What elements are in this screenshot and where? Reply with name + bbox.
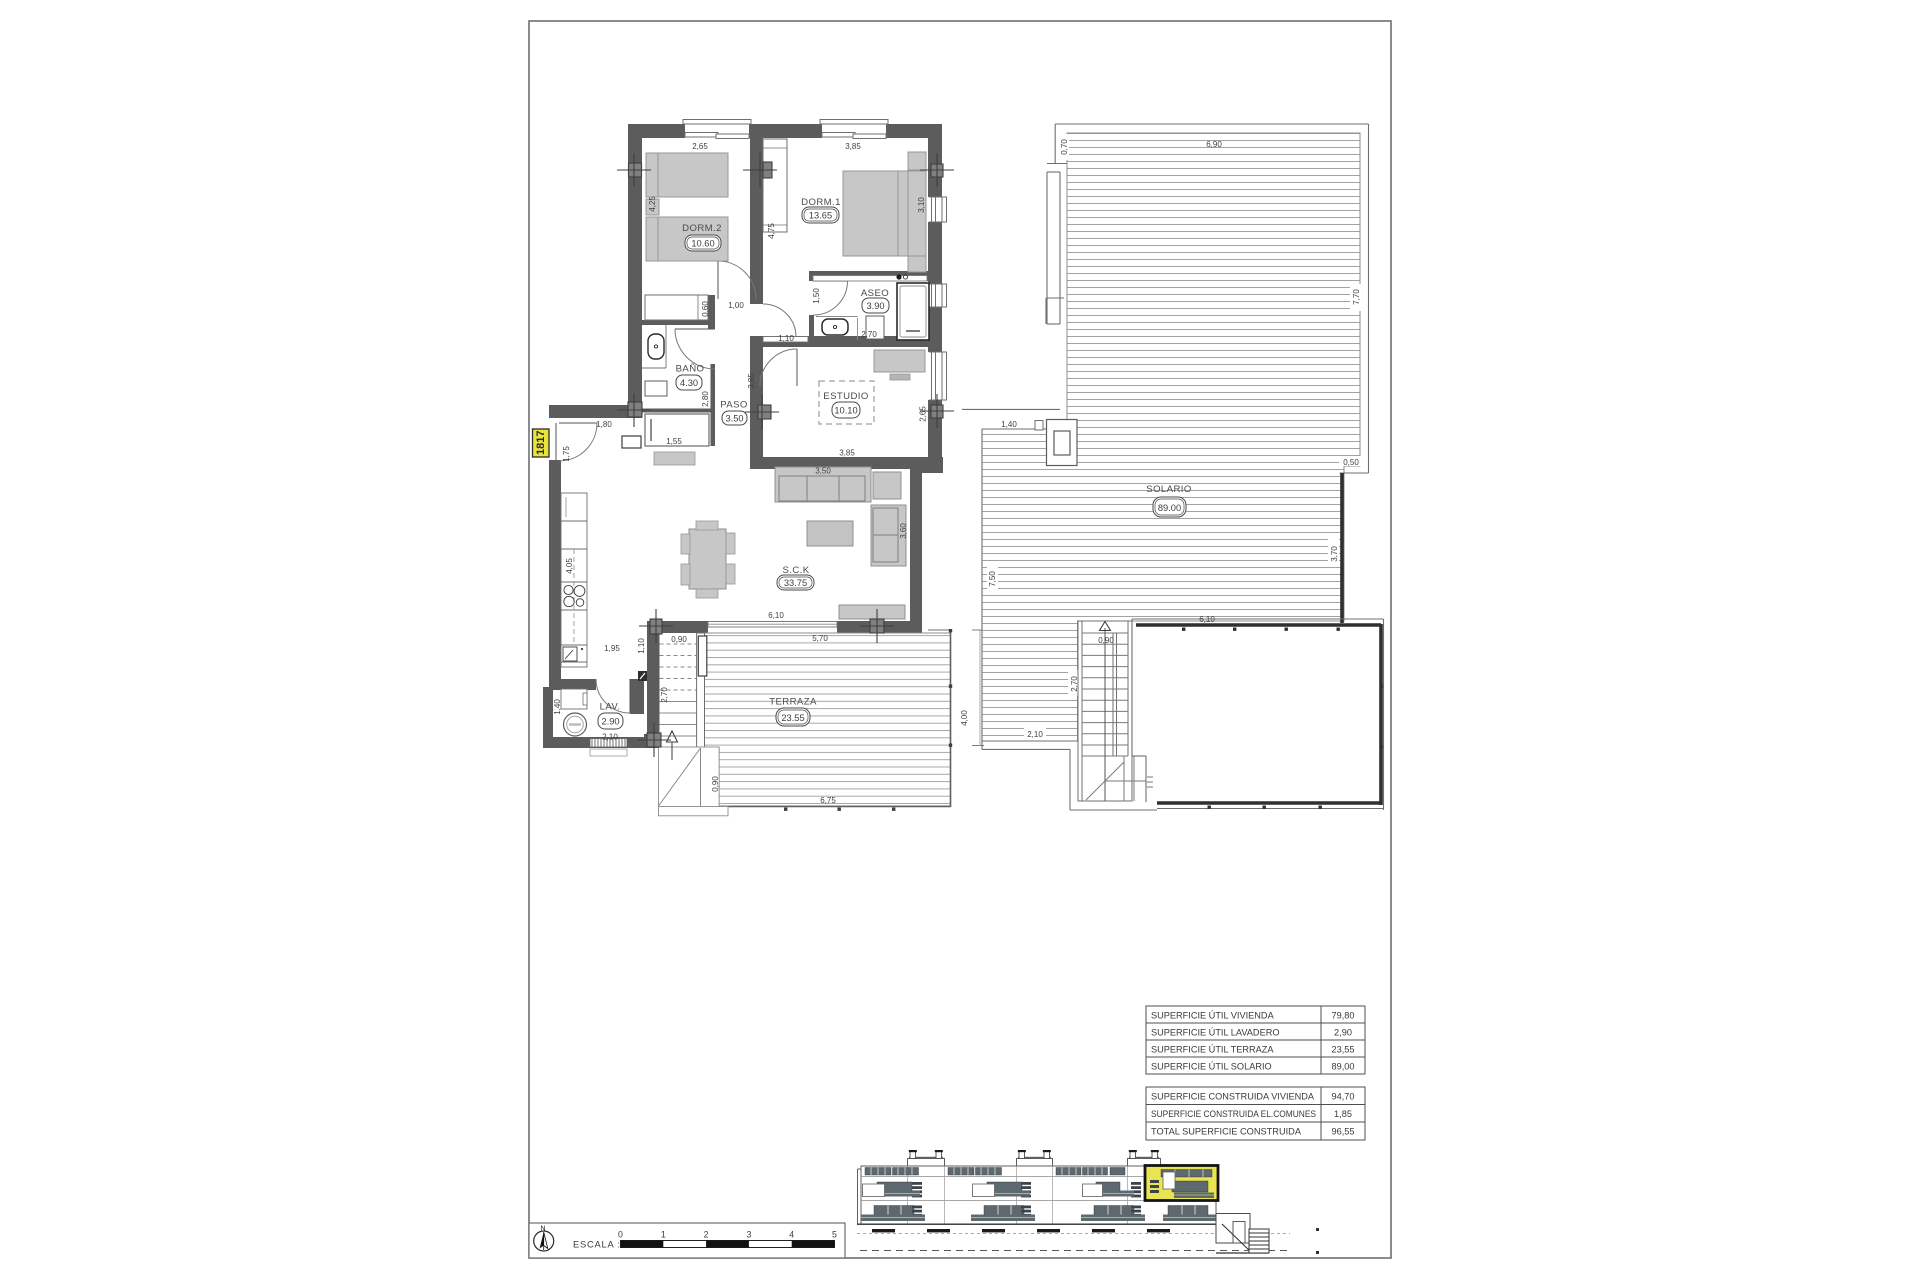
svg-text:PASO: PASO <box>720 400 748 411</box>
svg-text:2,70: 2,70 <box>861 330 877 339</box>
svg-text:1,85: 1,85 <box>1334 1109 1352 1119</box>
svg-text:4,05: 4,05 <box>565 558 574 574</box>
svg-text:7,50: 7,50 <box>988 571 997 587</box>
svg-text:0,50: 0,50 <box>1343 458 1359 467</box>
svg-text:2,90: 2,90 <box>1334 1028 1352 1038</box>
svg-text:5,70: 5,70 <box>812 634 828 643</box>
svg-text:SUPERFICIE ÚTIL VIVIENDA: SUPERFICIE ÚTIL VIVIENDA <box>1151 1011 1275 1021</box>
svg-text:DORM.1: DORM.1 <box>801 197 841 208</box>
svg-text:4.30: 4.30 <box>680 378 698 388</box>
svg-text:3,50: 3,50 <box>815 467 831 476</box>
svg-text:1: 1 <box>661 1230 666 1240</box>
svg-text:4,00: 4,00 <box>960 710 969 726</box>
svg-text:89,00: 89,00 <box>1332 1062 1355 1072</box>
svg-text:33.75: 33.75 <box>784 578 807 588</box>
svg-text:23.55: 23.55 <box>781 713 804 723</box>
svg-text:2,80: 2,80 <box>701 391 710 407</box>
svg-text:1817: 1817 <box>535 431 547 455</box>
svg-text:0,90: 0,90 <box>711 776 720 792</box>
svg-text:TOTAL SUPERFICIE CONSTRUIDA: TOTAL SUPERFICIE CONSTRUIDA <box>1151 1127 1302 1137</box>
svg-text:3,85: 3,85 <box>839 449 855 458</box>
svg-text:1,10: 1,10 <box>637 638 646 654</box>
svg-text:3,85: 3,85 <box>747 373 756 389</box>
svg-text:3,60: 3,60 <box>899 523 908 539</box>
svg-text:7,70: 7,70 <box>1352 289 1361 305</box>
svg-text:10.60: 10.60 <box>691 239 714 249</box>
svg-text:4: 4 <box>789 1230 794 1240</box>
svg-text:1,50: 1,50 <box>812 288 821 304</box>
svg-text:2,65: 2,65 <box>692 142 708 151</box>
svg-text:S.C.K: S.C.K <box>782 565 809 576</box>
svg-text:2,70: 2,70 <box>660 687 669 703</box>
svg-text:6,10: 6,10 <box>1199 615 1215 624</box>
svg-text:4,75: 4,75 <box>767 223 776 239</box>
svg-text:TERRAZA: TERRAZA <box>769 697 817 708</box>
svg-text:10.10: 10.10 <box>834 406 857 416</box>
svg-text:3.90: 3.90 <box>866 301 884 311</box>
svg-text:BAÑO: BAÑO <box>676 364 705 375</box>
svg-text:1,40: 1,40 <box>553 699 562 715</box>
svg-text:94,70: 94,70 <box>1332 1092 1355 1102</box>
svg-text:DORM.2: DORM.2 <box>682 223 722 234</box>
svg-text:79,80: 79,80 <box>1332 1011 1355 1021</box>
svg-text:4,25: 4,25 <box>648 196 657 212</box>
svg-text:89.00: 89.00 <box>1158 503 1181 513</box>
svg-text:3,10: 3,10 <box>917 197 926 213</box>
svg-text:N: N <box>541 1226 546 1233</box>
svg-text:96,55: 96,55 <box>1332 1127 1355 1137</box>
svg-text:5: 5 <box>832 1230 837 1240</box>
svg-text:3: 3 <box>746 1230 751 1240</box>
svg-text:ASEO: ASEO <box>861 288 889 299</box>
svg-text:2,10: 2,10 <box>1027 730 1043 739</box>
svg-text:1,75: 1,75 <box>562 446 571 462</box>
svg-text:SUPERFICIE ÚTIL TERRAZA: SUPERFICIE ÚTIL TERRAZA <box>1151 1045 1274 1055</box>
svg-text:0,90: 0,90 <box>671 635 687 644</box>
svg-text:SUPERFICIE CONSTRUIDA EL.COMUN: SUPERFICIE CONSTRUIDA EL.COMUNES <box>1151 1109 1316 1119</box>
svg-text:ESCALA :: ESCALA : <box>573 1240 621 1250</box>
svg-text:3,85: 3,85 <box>845 142 861 151</box>
svg-text:2.90: 2.90 <box>601 717 619 727</box>
svg-text:SUPERFICIE ÚTIL LAVADERO: SUPERFICIE ÚTIL LAVADERO <box>1151 1028 1279 1038</box>
svg-text:SUPERFICIE CONSTRUIDA VIVIENDA: SUPERFICIE CONSTRUIDA VIVIENDA <box>1151 1092 1315 1102</box>
svg-text:1,95: 1,95 <box>604 644 620 653</box>
svg-text:SUPERFICIE ÚTIL SOLARIO: SUPERFICIE ÚTIL SOLARIO <box>1151 1062 1272 1072</box>
svg-text:6,10: 6,10 <box>768 611 784 620</box>
svg-text:1,55: 1,55 <box>666 437 682 446</box>
svg-text:3.50: 3.50 <box>725 414 743 424</box>
svg-text:6,90: 6,90 <box>1206 140 1222 149</box>
svg-text:1,40: 1,40 <box>1001 420 1017 429</box>
svg-text:SOLARIO: SOLARIO <box>1146 484 1191 495</box>
svg-text:ESTUDIO: ESTUDIO <box>823 391 868 402</box>
svg-text:2,10: 2,10 <box>602 733 618 742</box>
svg-text:3,70: 3,70 <box>1330 546 1339 562</box>
svg-text:1,00: 1,00 <box>728 301 744 310</box>
svg-text:1,10: 1,10 <box>778 334 794 343</box>
svg-text:0,70: 0,70 <box>1060 139 1069 155</box>
svg-text:23,55: 23,55 <box>1332 1045 1355 1055</box>
svg-text:6,75: 6,75 <box>820 796 836 805</box>
svg-text:2,65: 2,65 <box>919 406 928 422</box>
svg-text:2: 2 <box>704 1230 709 1240</box>
svg-text:0: 0 <box>618 1230 623 1240</box>
svg-text:0,60: 0,60 <box>701 301 710 317</box>
svg-text:13.65: 13.65 <box>809 211 832 221</box>
svg-text:LAV.: LAV. <box>600 702 621 713</box>
svg-text:1,80: 1,80 <box>596 420 612 429</box>
svg-text:0,90: 0,90 <box>1098 636 1114 645</box>
